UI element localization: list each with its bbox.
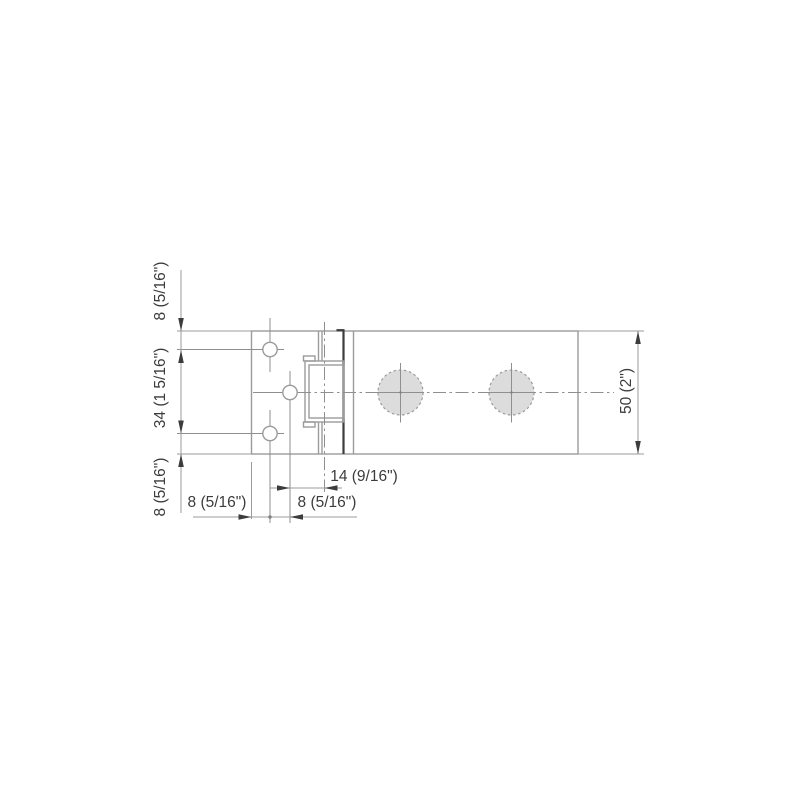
arrow-down-icon [635, 441, 641, 454]
arrow-down-icon [178, 318, 184, 331]
dim-label-height: 50 (2") [618, 368, 635, 414]
mounting-hole [283, 385, 297, 399]
arrow-right-icon [239, 514, 252, 520]
technical-drawing: 8 (5/16") 34 (1 5/16") 8 (5/16") 50 (2")… [0, 0, 800, 800]
dim-label-bottom-offset: 8 (5/16") [152, 458, 169, 517]
mounting-hole [263, 342, 277, 356]
dim-label-edge-to-hole: 8 (5/16") [188, 494, 247, 511]
dim-label-hole-to-centerline: 8 (5/16") [298, 494, 357, 511]
dim-label-hole-spacing: 34 (1 5/16") [152, 348, 169, 428]
mounting-hole [263, 426, 277, 440]
arrow-up-icon [635, 331, 641, 344]
dimension-dot [268, 515, 271, 518]
arrow-left-icon [290, 514, 303, 520]
arrow-up-icon [178, 350, 184, 363]
arrow-left-icon [325, 485, 338, 491]
arrow-up-icon [178, 454, 184, 467]
dim-label-top-offset: 8 (5/16") [152, 262, 169, 321]
drawing-svg: 8 (5/16") 34 (1 5/16") 8 (5/16") 50 (2")… [0, 0, 800, 800]
dim-label-slot-depth: 14 (9/16") [330, 468, 398, 485]
arrow-down-icon [178, 421, 184, 434]
bore-center-dot [510, 391, 512, 393]
bore-center-dot [399, 391, 401, 393]
arrow-right-icon [277, 485, 290, 491]
